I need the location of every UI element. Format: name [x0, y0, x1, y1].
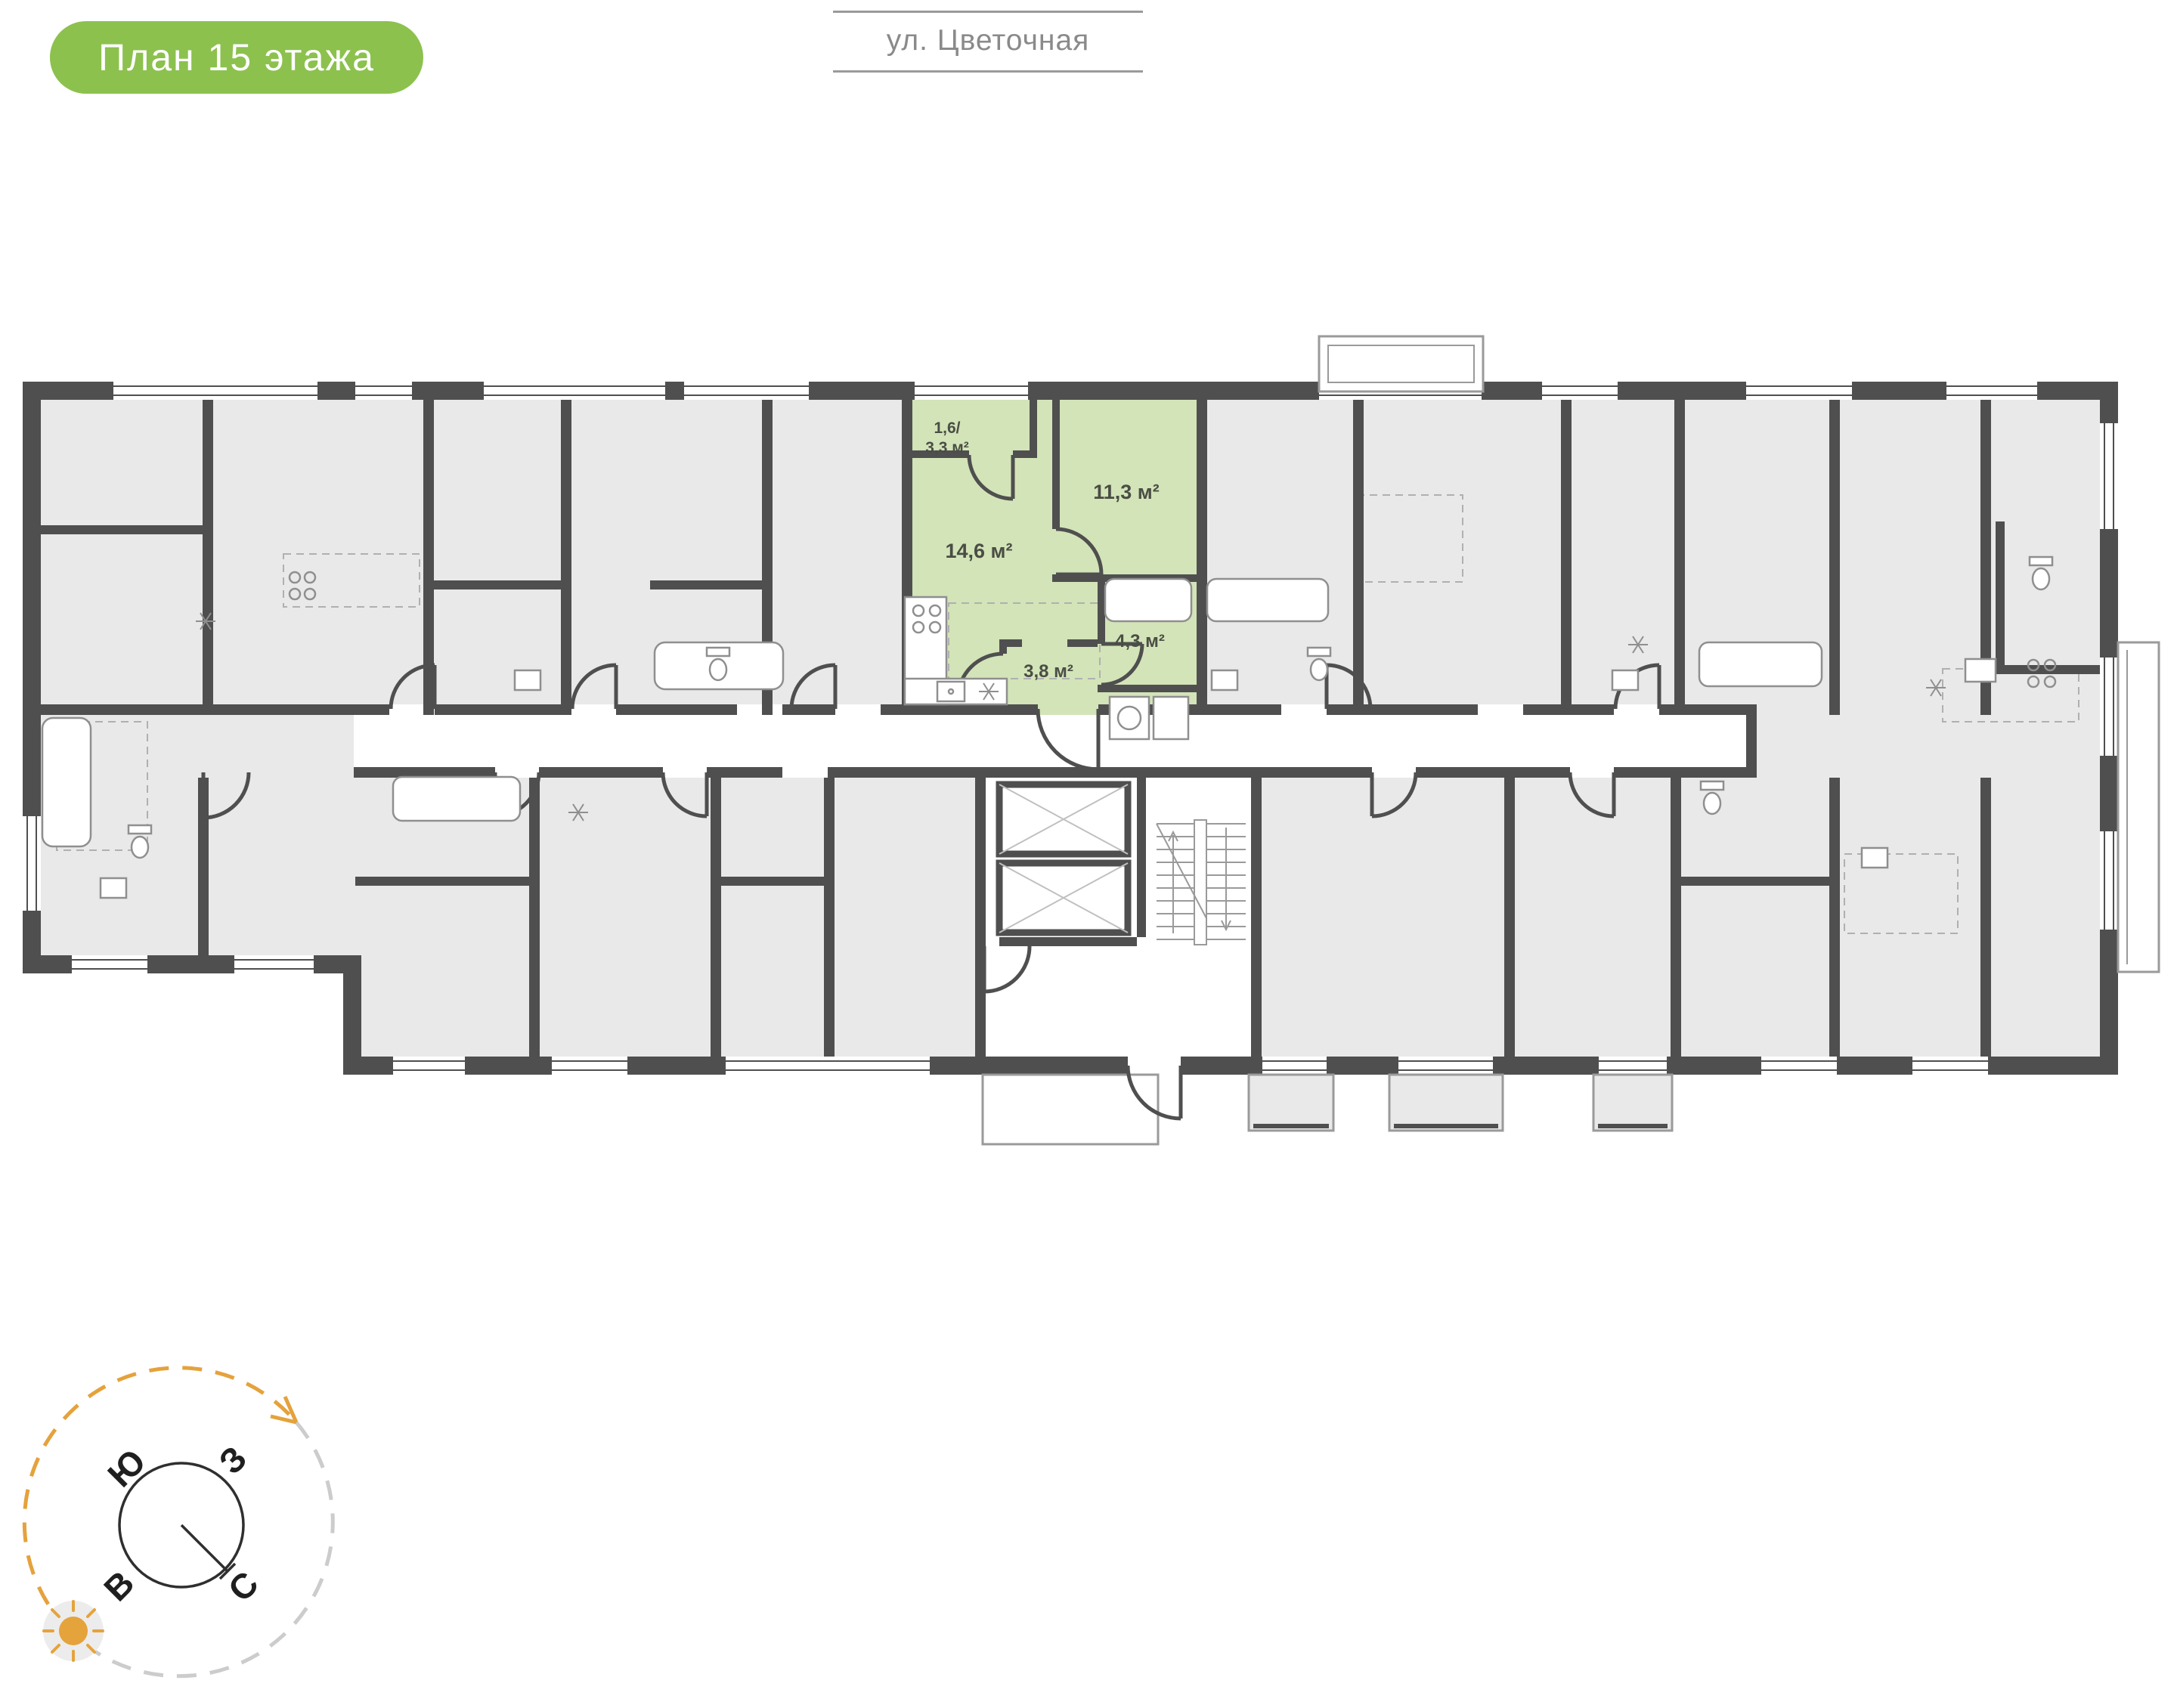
- bottom-balcony-3: [1593, 1075, 1672, 1131]
- bathtub: [393, 777, 520, 821]
- hallway-area-label: 3,8 м²: [1023, 661, 1073, 682]
- top-balcony: [1319, 336, 1483, 391]
- bathtub: [1699, 642, 1822, 686]
- sun-icon: [43, 1601, 104, 1661]
- compass: Ю З В С: [24, 1368, 333, 1676]
- bottom-balcony-1: [1249, 1075, 1333, 1131]
- bathtub: [1105, 579, 1191, 621]
- balcony-area-label-line1: 1,6/: [934, 419, 960, 437]
- bathtub: [42, 718, 91, 846]
- living-area-label: 14,6 м²: [945, 540, 1012, 562]
- balcony-area-label-line2: 3,3 м²: [925, 439, 969, 456]
- right-balcony: [2118, 642, 2159, 972]
- compass-letter-east: В: [96, 1563, 141, 1608]
- corridor: [354, 704, 1757, 778]
- cabinet: [1154, 697, 1188, 739]
- washing-machine: [1110, 697, 1149, 739]
- bedroom-area-label: 11,3 м²: [1093, 481, 1160, 503]
- bottom-balcony-2: [1389, 1075, 1503, 1131]
- floor-plan: 1,6/ 3,3 м² 14,6 м² 11,3 м² 3,8 м² 4,3 м…: [0, 0, 2177, 1708]
- bathtub: [1207, 579, 1328, 621]
- bathroom-area-label: 4,3 м²: [1115, 631, 1165, 651]
